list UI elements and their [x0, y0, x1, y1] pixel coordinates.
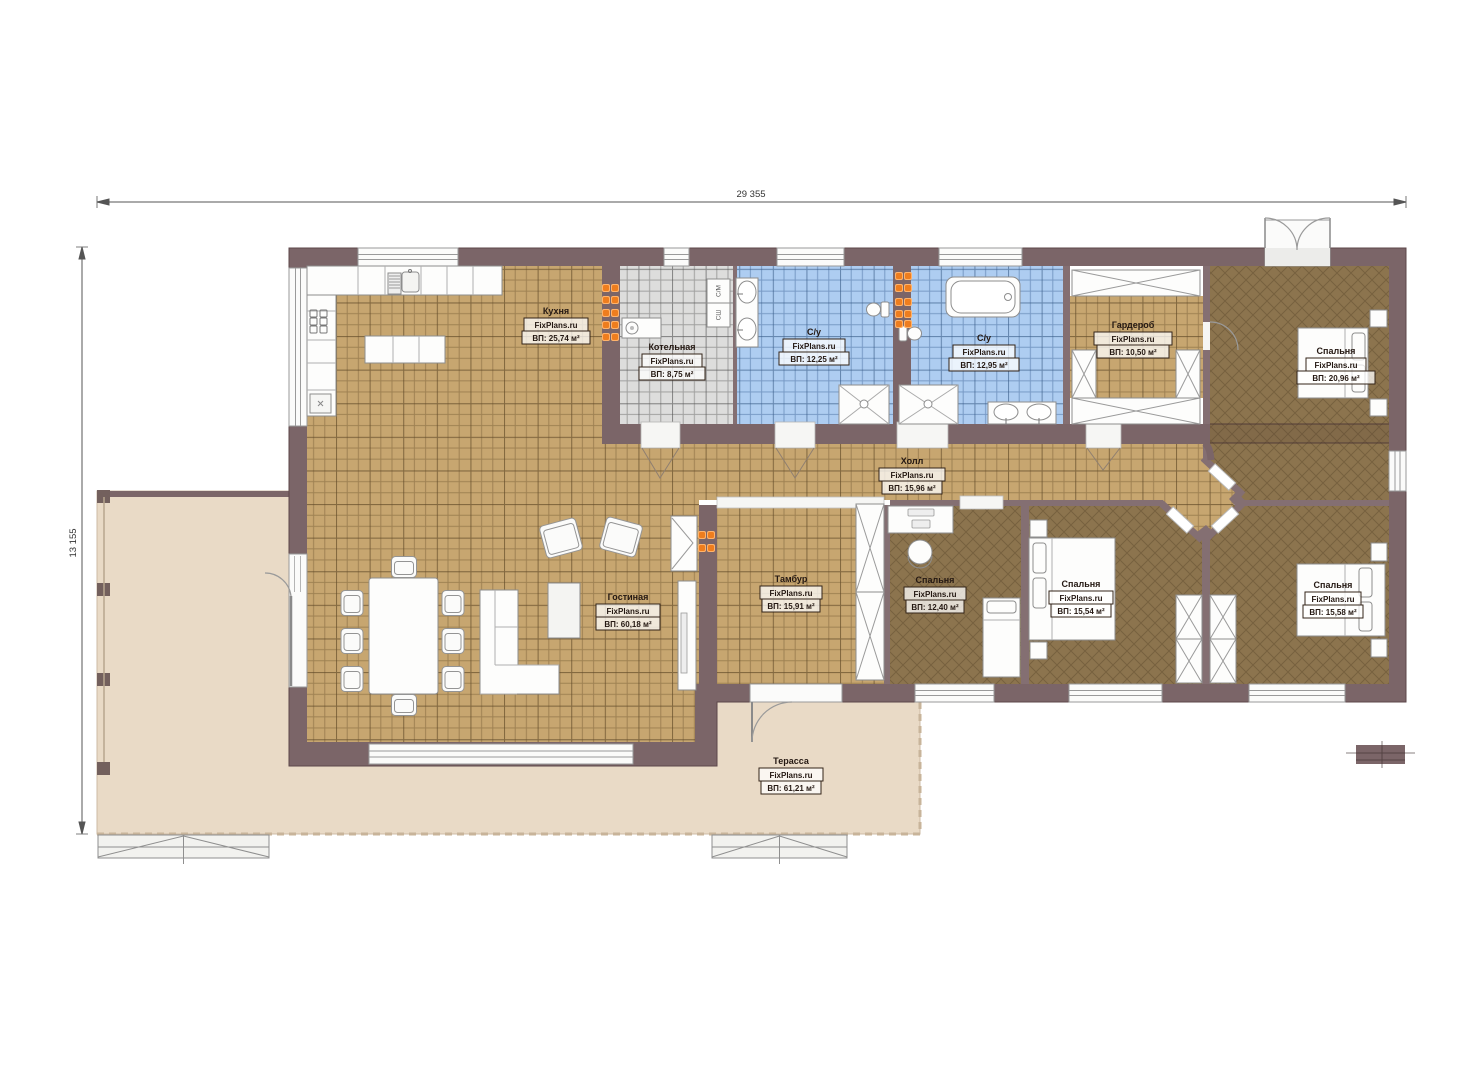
svg-text:ВП: 12,25 м²: ВП: 12,25 м² [790, 355, 838, 364]
svg-text:Гардероб: Гардероб [1112, 320, 1155, 330]
svg-text:ВП: 60,18 м²: ВП: 60,18 м² [604, 620, 652, 629]
svg-text:Кухня: Кухня [543, 306, 569, 316]
svg-text:FixPlans.ru: FixPlans.ru [650, 357, 693, 366]
svg-text:ВП: 15,54 м²: ВП: 15,54 м² [1057, 607, 1105, 616]
svg-text:ВП: 25,74 м²: ВП: 25,74 м² [532, 334, 580, 343]
svg-text:29 355: 29 355 [736, 189, 765, 200]
svg-text:FixPlans.ru: FixPlans.ru [913, 590, 956, 599]
svg-text:Котельная: Котельная [648, 342, 695, 352]
svg-text:ВП: 12,95 м²: ВП: 12,95 м² [960, 361, 1008, 370]
svg-text:ВП: 61,21 м²: ВП: 61,21 м² [767, 784, 815, 793]
svg-text:Спальня: Спальня [916, 575, 955, 585]
svg-text:Спальня: Спальня [1314, 580, 1353, 590]
svg-text:Терасса: Терасса [773, 756, 810, 766]
svg-text:ВП: 10,50 м²: ВП: 10,50 м² [1109, 348, 1157, 357]
svg-text:ВП: 20,96 м²: ВП: 20,96 м² [1312, 374, 1360, 383]
svg-text:13 155: 13 155 [68, 528, 79, 557]
svg-text:ВП: 15,91 м²: ВП: 15,91 м² [767, 602, 815, 611]
svg-text:Гостиная: Гостиная [608, 592, 649, 602]
svg-text:FixPlans.ru: FixPlans.ru [769, 771, 812, 780]
svg-text:Спальня: Спальня [1062, 579, 1101, 589]
svg-text:ВП: 15,96 м²: ВП: 15,96 м² [888, 484, 936, 493]
svg-text:FixPlans.ru: FixPlans.ru [1059, 594, 1102, 603]
svg-text:FixPlans.ru: FixPlans.ru [606, 607, 649, 616]
svg-text:FixPlans.ru: FixPlans.ru [534, 321, 577, 330]
svg-text:ВП: 8,75 м²: ВП: 8,75 м² [651, 370, 694, 379]
svg-text:С/у: С/у [977, 333, 991, 343]
svg-text:FixPlans.ru: FixPlans.ru [962, 348, 1005, 357]
svg-text:FixPlans.ru: FixPlans.ru [1311, 595, 1354, 604]
svg-text:FixPlans.ru: FixPlans.ru [1314, 361, 1357, 370]
svg-text:FixPlans.ru: FixPlans.ru [769, 589, 812, 598]
svg-text:FixPlans.ru: FixPlans.ru [890, 471, 933, 480]
svg-text:Спальня: Спальня [1317, 346, 1356, 356]
svg-text:FixPlans.ru: FixPlans.ru [1111, 335, 1154, 344]
svg-text:ВП: 12,40 м²: ВП: 12,40 м² [911, 603, 959, 612]
svg-text:Холл: Холл [901, 456, 924, 466]
svg-text:СШ: СШ [716, 310, 723, 321]
svg-text:ВП: 15,58 м²: ВП: 15,58 м² [1309, 608, 1357, 617]
svg-text:С/М: С/М [716, 285, 723, 297]
svg-text:С/у: С/у [807, 327, 821, 337]
svg-text:FixPlans.ru: FixPlans.ru [792, 342, 835, 351]
svg-text:Тамбур: Тамбур [775, 574, 808, 584]
